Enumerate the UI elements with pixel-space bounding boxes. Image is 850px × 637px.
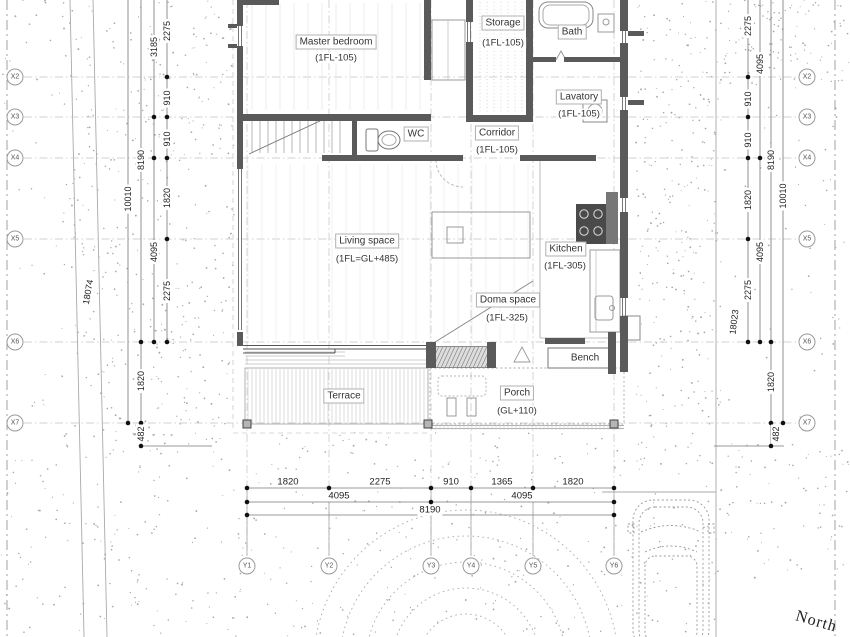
room-label-kitchen: Kitchen bbox=[545, 242, 586, 257]
dim-bottom-2275: 2275 bbox=[367, 477, 392, 488]
dim-left-3185: 3185 bbox=[149, 35, 159, 59]
room-level-corridor: (1FL-105) bbox=[474, 145, 520, 156]
dim-bottom-1820b: 1820 bbox=[560, 477, 585, 488]
dim-right-1820a: 1820 bbox=[743, 188, 753, 212]
grid-marker-x6-left: X6 bbox=[7, 334, 24, 351]
dim-left-910b: 910 bbox=[162, 129, 172, 148]
dim-bottom-4095a: 4095 bbox=[326, 491, 351, 502]
dim-left-8190: 8190 bbox=[136, 148, 146, 172]
grid-marker-y1: Y1 bbox=[239, 558, 256, 575]
dim-right-2275b: 2275 bbox=[743, 278, 753, 302]
grid-marker-x2-left: X2 bbox=[7, 69, 24, 86]
dim-bottom-1365: 1365 bbox=[489, 477, 514, 488]
room-label-doma: Doma space bbox=[476, 293, 540, 308]
grid-marker-y2: Y2 bbox=[321, 558, 338, 575]
grid-marker-x5-right: X5 bbox=[799, 231, 816, 248]
grid-marker-x7-right: X7 bbox=[799, 415, 816, 432]
dim-bottom-8190: 8190 bbox=[417, 505, 442, 516]
dim-right-8190: 8190 bbox=[766, 148, 776, 172]
dim-left-1820a: 1820 bbox=[162, 186, 172, 210]
room-level-doma: (1FL-325) bbox=[484, 313, 530, 324]
room-level-master: (1FL-105) bbox=[313, 53, 359, 64]
room-label-terrace: Terrace bbox=[323, 389, 364, 404]
dim-left-1820b: 1820 bbox=[136, 369, 146, 393]
room-level-kitchen: (1FL-305) bbox=[542, 261, 588, 272]
room-label-bath: Bath bbox=[558, 25, 587, 40]
grid-marker-x4-right: X4 bbox=[799, 150, 816, 167]
grid-marker-x7-left: X7 bbox=[7, 415, 24, 432]
dim-left-4095: 4095 bbox=[149, 240, 159, 264]
dim-right-10010: 10010 bbox=[778, 181, 788, 210]
dim-right-2275a: 2275 bbox=[743, 14, 753, 38]
dim-bottom-4095b: 4095 bbox=[509, 491, 534, 502]
plan-linework bbox=[0, 0, 850, 637]
dim-left-482: 482 bbox=[136, 424, 146, 443]
dim-right-910b: 910 bbox=[743, 130, 753, 149]
dim-right-910a: 910 bbox=[743, 89, 753, 108]
dim-right-4095a: 4095 bbox=[755, 52, 765, 76]
room-level-porch: (GL+110) bbox=[495, 406, 539, 417]
room-level-lavatory: (1FL-105) bbox=[556, 109, 602, 120]
grid-marker-x2-right: X2 bbox=[799, 69, 816, 86]
dim-left-10010: 10010 bbox=[123, 184, 133, 213]
grid-marker-x3-left: X3 bbox=[7, 109, 24, 126]
room-label-living: Living space bbox=[335, 234, 399, 249]
grid-marker-y5: Y5 bbox=[525, 558, 542, 575]
grid-marker-y4: Y4 bbox=[463, 558, 480, 575]
room-label-storage: Storage bbox=[481, 16, 524, 31]
room-label-master: Master bedroom bbox=[296, 35, 377, 50]
grid-marker-y3: Y3 bbox=[423, 558, 440, 575]
grid-marker-x6-right: X6 bbox=[799, 334, 816, 351]
grid-marker-x5-left: X5 bbox=[7, 231, 24, 248]
room-label-lavatory: Lavatory bbox=[556, 90, 602, 105]
room-label-porch: Porch bbox=[500, 386, 534, 401]
dim-left-2275a: 2275 bbox=[162, 19, 172, 43]
dim-bottom-910: 910 bbox=[441, 477, 461, 488]
dim-right-1820b: 1820 bbox=[766, 370, 776, 394]
dim-right-482: 482 bbox=[771, 424, 781, 443]
room-label-wc: WC bbox=[404, 127, 429, 142]
room-level-living: (1FL=GL+485) bbox=[334, 254, 400, 265]
room-label-bench: Bench bbox=[569, 353, 601, 364]
grid-marker-x4-left: X4 bbox=[7, 150, 24, 167]
dim-right-4095b: 4095 bbox=[755, 240, 765, 264]
floor-plan-sheet: Master bedroom (1FL-105) Storage (1FL-10… bbox=[0, 0, 850, 637]
dim-left-910a: 910 bbox=[162, 88, 172, 107]
dim-bottom-1820a: 1820 bbox=[275, 477, 300, 488]
grid-marker-x3-right: X3 bbox=[799, 109, 816, 126]
room-label-corridor: Corridor bbox=[475, 126, 519, 141]
dim-left-2275b: 2275 bbox=[162, 279, 172, 303]
room-level-storage: (1FL-105) bbox=[480, 38, 526, 49]
grid-marker-y6: Y6 bbox=[606, 558, 623, 575]
